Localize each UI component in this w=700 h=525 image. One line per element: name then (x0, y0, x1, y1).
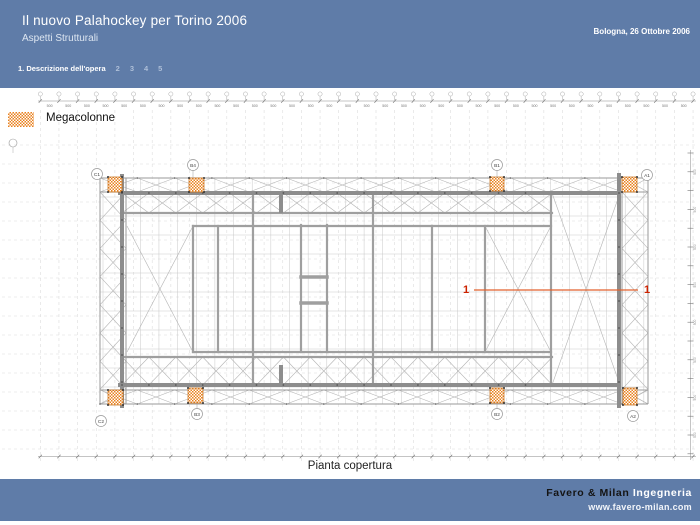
svg-text:500: 500 (103, 104, 109, 108)
svg-text:500: 500 (693, 169, 697, 175)
svg-text:500: 500 (289, 104, 295, 108)
svg-text:500: 500 (401, 104, 407, 108)
dimension-chain-bottom (38, 455, 696, 458)
interior-beams (122, 193, 552, 385)
svg-text:500: 500 (47, 104, 53, 108)
nav-item-4[interactable]: 4 (144, 64, 148, 73)
grid-bubble-b2: B2 (492, 404, 503, 420)
nav-item-5[interactable]: 5 (158, 64, 162, 73)
svg-text:500: 500 (438, 104, 444, 108)
grid-bubble-b3: B3 (192, 404, 203, 420)
svg-text:C2: C2 (98, 419, 104, 425)
central-ladder-feature (301, 225, 327, 352)
svg-text:A1: A1 (644, 173, 650, 179)
svg-text:C1: C1 (94, 172, 100, 178)
svg-text:500: 500 (196, 104, 202, 108)
grid-bubble-b1: B1 (492, 160, 503, 179)
section-marker-left: 1 (463, 284, 469, 296)
svg-text:500: 500 (308, 104, 314, 108)
page-subtitle: Aspetti Strutturali (22, 33, 98, 44)
svg-text:500: 500 (532, 104, 538, 108)
grid-bubble-c2: C2 (96, 416, 107, 427)
grid-bubble-c1: C1 (92, 169, 103, 180)
svg-text:500: 500 (606, 104, 612, 108)
svg-text:B3: B3 (194, 412, 200, 418)
svg-text:B1: B1 (494, 163, 500, 169)
megacolonne-swatch-icon (8, 112, 34, 127)
svg-text:500: 500 (420, 104, 426, 108)
svg-text:500: 500 (252, 104, 258, 108)
svg-text:B2: B2 (494, 412, 500, 418)
nav-item-2[interactable]: 2 (116, 64, 120, 73)
svg-text:500: 500 (177, 104, 183, 108)
svg-text:500: 500 (625, 104, 631, 108)
svg-text:500: 500 (233, 104, 239, 108)
svg-text:500: 500 (693, 282, 697, 288)
svg-text:500: 500 (569, 104, 575, 108)
svg-text:500: 500 (662, 104, 668, 108)
svg-text:500: 500 (121, 104, 127, 108)
content-area: C1 B4 B1 A1 C2 B3 B2 A2 (0, 88, 700, 479)
left-grid-bubble (9, 139, 17, 153)
section-marker-right: 1 (644, 284, 650, 296)
header: Il nuovo Palahockey per Torino 2006 Aspe… (0, 0, 700, 88)
nav-item-1-active[interactable]: 1. Descrizione dell'opera (18, 64, 106, 73)
svg-text:500: 500 (345, 104, 351, 108)
svg-text:500: 500 (457, 104, 463, 108)
grid-bubble-b4: B4 (188, 160, 199, 179)
dimension-chain-top: 5005005005005005005005005005005005005005… (38, 92, 696, 108)
footer-band: Favero & Milan Ingegneria www.favero-mil… (0, 479, 700, 521)
section-nav: 1. Descrizione dell'opera 2 3 4 5 (18, 64, 162, 73)
svg-text:500: 500 (681, 104, 687, 108)
svg-text:500: 500 (326, 104, 332, 108)
svg-text:B4: B4 (190, 163, 196, 169)
svg-text:500: 500 (693, 395, 697, 401)
roof-plan-drawing: C1 B4 B1 A1 C2 B3 B2 A2 (0, 88, 700, 479)
grid-bubble-a1: A1 (642, 170, 653, 181)
company-name: Favero & Milan Ingegneria (546, 487, 692, 499)
legend-label: Megacolonne (46, 112, 115, 124)
svg-text:500: 500 (65, 104, 71, 108)
svg-text:500: 500 (159, 104, 165, 108)
svg-text:A2: A2 (630, 414, 636, 420)
svg-text:500: 500 (476, 104, 482, 108)
dimension-chain-right: 500500500500500500500500 (688, 150, 698, 460)
page-title: Il nuovo Palahockey per Torino 2006 (22, 13, 247, 28)
svg-text:500: 500 (270, 104, 276, 108)
date-label: Bologna, 26 Ottobre 2006 (594, 27, 690, 36)
svg-text:500: 500 (140, 104, 146, 108)
svg-text:500: 500 (587, 104, 593, 108)
svg-text:500: 500 (693, 319, 697, 325)
slide: Il nuovo Palahockey per Torino 2006 Aspe… (0, 0, 700, 525)
svg-text:500: 500 (364, 104, 370, 108)
svg-text:500: 500 (643, 104, 649, 108)
svg-text:500: 500 (693, 244, 697, 250)
svg-text:500: 500 (513, 104, 519, 108)
svg-text:500: 500 (693, 357, 697, 363)
svg-text:500: 500 (84, 104, 90, 108)
svg-text:500: 500 (550, 104, 556, 108)
svg-text:500: 500 (693, 207, 697, 213)
svg-text:500: 500 (693, 432, 697, 438)
svg-text:500: 500 (382, 104, 388, 108)
grid-bubble-a2: A2 (628, 411, 639, 422)
background-grid (2, 110, 696, 462)
nav-item-3[interactable]: 3 (130, 64, 134, 73)
svg-text:500: 500 (494, 104, 500, 108)
drawing-caption: Pianta copertura (0, 460, 700, 472)
svg-text:500: 500 (214, 104, 220, 108)
website-link[interactable]: www.favero-milan.com (588, 502, 692, 512)
